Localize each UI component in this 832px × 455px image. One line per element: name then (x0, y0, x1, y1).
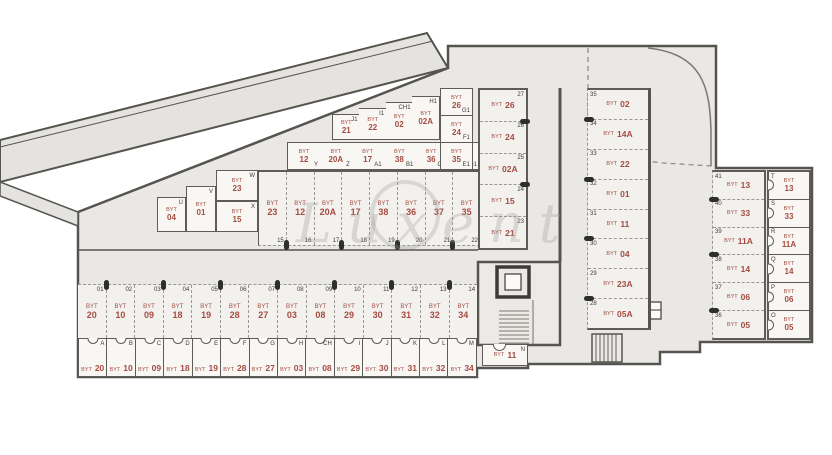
parking-space: 19 BYT38 (369, 172, 397, 245)
unit-label: BYT11A (713, 228, 764, 255)
parking-space: 13 BYT32 (420, 285, 449, 338)
unit-label: BYT15 (480, 185, 526, 216)
unit-number: 20 (87, 311, 97, 320)
cellar-room: CH BYT08 (305, 339, 333, 376)
unit-label: BYT15 (217, 202, 257, 231)
unit-number: 18 (173, 311, 183, 320)
unit-prefix: BYT (488, 166, 499, 172)
unit-label: BYT13 (713, 172, 764, 199)
unit-number: 27 (258, 311, 268, 320)
unit-prefix: BYT (86, 304, 98, 310)
unit-number: 10 (115, 311, 125, 320)
unit-number: 33 (741, 208, 750, 218)
unit-number: 22 (620, 159, 629, 169)
wing-parking-column: 41 BYT13 40 BYT33 39 BYT11A 38 BYT14 37 … (712, 170, 766, 340)
unit-number: 03 (287, 311, 297, 320)
unit-label: BYT28 (221, 339, 248, 376)
unit-number: 08 (315, 311, 325, 320)
parking-space: 05 BYT19 (191, 285, 220, 338)
cellar-room: H BYT03 (277, 339, 305, 376)
unit-prefix: BYT (229, 304, 241, 310)
unit-label: BYT24 (441, 116, 472, 142)
bottom-parking-band: 01 BYT20 02 BYT10 03 BYT09 04 BYT18 05 B… (78, 284, 477, 338)
parking-space: 31 BYT11 (588, 209, 648, 239)
parking-space: 26 BYT24 (480, 121, 526, 153)
cellar-room-n: N BYT11 (482, 344, 528, 366)
unit-number: 20A (328, 156, 343, 164)
unit-label: BYT02 (588, 90, 648, 119)
unit-label: BYT26 (480, 90, 526, 121)
floorplan-page: 01 BYT20 02 BYT10 03 BYT09 04 BYT18 05 B… (0, 0, 832, 455)
unit-number: 03 (294, 363, 303, 373)
unit-number: 05A (617, 309, 633, 319)
unit-prefix: BYT (350, 201, 362, 207)
unit-number: 02A (502, 164, 518, 174)
unit-label: BYT20 (79, 339, 106, 376)
unit-prefix: BYT (494, 352, 505, 358)
unit-number: 15 (505, 196, 514, 206)
cellar-room: G BYT27 (249, 339, 277, 376)
cellar-room: Y BYT12 (287, 142, 321, 170)
unit-number: 14 (741, 264, 750, 274)
parking-space: 17 BYT20A (314, 172, 342, 245)
unit-prefix: BYT (461, 201, 473, 207)
unit-prefix: BYT (405, 201, 417, 207)
unit-prefix: BYT (420, 111, 431, 117)
unit-number: 32 (430, 311, 440, 320)
unit-prefix: BYT (400, 304, 412, 310)
parking-space: 38 BYT14 (713, 254, 764, 282)
unit-prefix: BYT (394, 367, 405, 373)
unit-label: BYT28 (221, 285, 249, 338)
unit-label: BYT18 (164, 285, 192, 338)
unit-prefix: BYT (784, 178, 795, 184)
unit-number: 17 (351, 208, 361, 217)
elevator-car-icon (505, 274, 521, 290)
unit-label: BYT33 (769, 200, 809, 227)
unit-number: 15 (233, 216, 242, 224)
cellar-room: D BYT18 (163, 339, 191, 376)
unit-prefix: BYT (433, 201, 445, 207)
unit-label: BYT33 (713, 200, 764, 227)
unit-label: BYT04 (588, 239, 648, 268)
unit-label: BYT06 (713, 283, 764, 310)
unit-prefix: BYT (394, 149, 405, 155)
unit-prefix: BYT (727, 266, 738, 272)
cellar-room: CH1 BYT02 (386, 102, 414, 140)
parking-space: 35 BYT02 (588, 90, 648, 119)
unit-number: 27 (265, 363, 274, 373)
unit-prefix: BYT (110, 367, 121, 373)
unit-label: BYT11A (769, 228, 809, 255)
unit-number: 30 (373, 311, 383, 320)
unit-label: BYT38 (370, 172, 397, 245)
cellar-room: B BYT10 (106, 339, 134, 376)
unit-label: BYT27 (249, 285, 277, 338)
unit-prefix: BYT (322, 201, 334, 207)
unit-prefix: BYT (429, 304, 441, 310)
unit-label: BYT18 (164, 339, 191, 376)
unit-label: BYT23 (217, 171, 257, 200)
middle-parking-band: 15 BYT23 16 BYT12 17 BYT20A 18 BYT17 19 … (258, 170, 480, 246)
unit-label: BYT24 (480, 122, 526, 153)
unit-number: 23 (267, 208, 277, 217)
unit-label: BYT11 (588, 210, 648, 239)
cellar-room: Q BYT14 (769, 254, 809, 282)
cellar-room: V BYT01 (186, 186, 216, 232)
unit-prefix: BYT (138, 367, 149, 373)
unit-label: BYT02 (386, 103, 413, 139)
unit-label: BYT29 (335, 285, 363, 338)
unit-prefix: BYT (294, 201, 306, 207)
parking-space: 25 BYT02A (480, 153, 526, 185)
cellar-room: I1 BYT22 (359, 108, 387, 140)
unit-number: 22 (368, 124, 377, 132)
unit-number: 38 (395, 156, 404, 164)
cellar-room: G1 BYT26 (441, 89, 472, 115)
unit-prefix: BYT (337, 367, 348, 373)
unit-label: BYT10 (107, 339, 134, 376)
unit-number: 19 (201, 311, 211, 320)
cellar-room: P BYT06 (769, 282, 809, 310)
unit-number: 37 (434, 208, 444, 217)
unit-number: 13 (741, 180, 750, 190)
unit-label: BYT03 (278, 285, 306, 338)
unit-label: BYT23 (259, 172, 286, 245)
unit-prefix: BYT (457, 304, 469, 310)
unit-label: BYT08 (307, 285, 335, 338)
unit-label: BYT29 (335, 339, 362, 376)
parking-space: 22 BYT35 (452, 172, 480, 245)
unit-label: BYT04 (158, 198, 185, 231)
cellar-room: J BYT30 (362, 339, 390, 376)
parking-space: 30 BYT04 (588, 238, 648, 268)
unit-prefix: BYT (727, 182, 738, 188)
unit-label: BYT09 (135, 285, 163, 338)
parking-space: 01 BYT20 (78, 285, 106, 338)
unit-number: 29 (344, 311, 354, 320)
unit-number: 02 (620, 99, 629, 109)
unit-prefix: BYT (491, 102, 502, 108)
cellar-room: H1 BYT02A (412, 96, 440, 140)
unit-number: 09 (144, 311, 154, 320)
parking-space: 18 BYT17 (341, 172, 369, 245)
parking-space: 29 BYT23A (588, 268, 648, 298)
wing-cellar-column: T BYT13 S BYT33 R BYT11A Q BYT14 (767, 170, 811, 340)
unit-label: BYT08 (306, 339, 333, 376)
unit-label: BYT20A (315, 172, 342, 245)
parking-space: 33 BYT22 (588, 149, 648, 179)
unit-prefix: BYT (172, 304, 184, 310)
unit-number: 20A (320, 208, 337, 217)
unit-label: BYT02A (480, 154, 526, 185)
cellar-room: R BYT11A (769, 227, 809, 255)
unit-prefix: BYT (200, 304, 212, 310)
unit-label: BYT31 (392, 285, 420, 338)
unit-prefix: BYT (603, 311, 614, 317)
unit-label: BYT27 (250, 339, 277, 376)
unit-number: 34 (464, 363, 473, 373)
unit-number: 26 (505, 100, 514, 110)
unit-number: 24 (452, 129, 461, 137)
unit-number: 26 (452, 102, 461, 110)
unit-prefix: BYT (603, 131, 614, 137)
unit-prefix: BYT (252, 367, 263, 373)
cellar-room: E BYT19 (192, 339, 220, 376)
unit-prefix: BYT (426, 149, 437, 155)
unit-label: BYT14 (713, 255, 764, 282)
unit-label: BYT17 (352, 143, 384, 169)
unit-number: 38 (378, 208, 388, 217)
cellar-room: C BYT09 (135, 339, 163, 376)
unit-label: BYT31 (392, 339, 419, 376)
parking-space: 03 BYT09 (134, 285, 163, 338)
unit-label: BYT19 (193, 339, 220, 376)
unit-number: 23 (233, 185, 242, 193)
unit-label: BYT20A (320, 143, 352, 169)
unit-number: 36 (406, 208, 416, 217)
parking-space: 41 BYT13 (713, 172, 764, 199)
unit-label: BYT09 (136, 339, 163, 376)
unit-label: BYT23A (588, 269, 648, 298)
parking-space: 12 BYT31 (391, 285, 420, 338)
unit-number: 02A (418, 118, 433, 126)
parking-space: 08 BYT03 (277, 285, 306, 338)
parking-space: 28 BYT05A (588, 298, 648, 328)
unit-prefix: BYT (607, 221, 618, 227)
right-parking-column: 35 BYT02 34 BYT14A 33 BYT22 32 BYT01 31 … (587, 88, 651, 330)
unit-prefix: BYT (491, 198, 502, 204)
unit-prefix: BYT (724, 238, 735, 244)
unit-prefix: BYT (727, 294, 738, 300)
ramp-tail (0, 182, 78, 226)
parking-space: 10 BYT29 (334, 285, 363, 338)
unit-prefix: BYT (223, 367, 234, 373)
unit-prefix: BYT (257, 304, 269, 310)
unit-number: 31 (407, 363, 416, 373)
unit-label: BYT14A (588, 120, 648, 149)
unit-number: 04 (620, 249, 629, 259)
unit-prefix: BYT (315, 304, 327, 310)
unit-number: 23A (617, 279, 633, 289)
unit-number: 02 (395, 121, 404, 129)
parking-space: 32 BYT01 (588, 179, 648, 209)
unit-prefix: BYT (606, 191, 617, 197)
parking-space: 36 BYT05 (713, 310, 764, 338)
unit-number: 24 (505, 132, 514, 142)
cellar-room: F1 BYT24 (441, 115, 472, 142)
unit-number: 14 (785, 268, 794, 276)
unit-label: BYT35 (453, 172, 480, 245)
unit-number: 11A (782, 241, 796, 249)
parking-space: 09 BYT08 (306, 285, 335, 338)
unit-label: BYT21 (480, 217, 526, 248)
unit-label: BYT06 (769, 283, 809, 310)
unit-label: BYT34 (450, 285, 478, 338)
unit-number: 17 (363, 156, 372, 164)
unit-number: 33 (785, 213, 794, 221)
unit-label: BYT35 (441, 143, 472, 169)
unit-label: BYT12 (288, 143, 320, 169)
unit-number: 19 (209, 363, 218, 373)
cellar-room: X BYT15 (216, 201, 258, 232)
parking-space: 37 BYT06 (713, 282, 764, 310)
unit-prefix: BYT (299, 149, 310, 155)
unit-label: BYT05A (588, 299, 648, 328)
unit-prefix: BYT (81, 367, 92, 373)
unit-label: BYT12 (287, 172, 314, 245)
left-diagonal-cellars: U BYT04 V BYT01 W BYT23 X BYT15 (157, 170, 258, 232)
unit-prefix: BYT (606, 101, 617, 107)
unit-number: 01 (197, 209, 206, 217)
unit-label: BYT14 (769, 255, 809, 282)
unit-prefix: BYT (784, 234, 795, 240)
unit-label: BYT17 (342, 172, 369, 245)
unit-number: 10 (123, 363, 132, 373)
parking-space: 04 BYT18 (163, 285, 192, 338)
unit-prefix: BYT (280, 367, 291, 373)
unit-prefix: BYT (267, 201, 279, 207)
unit-prefix: BYT (422, 367, 433, 373)
unit-prefix: BYT (606, 161, 617, 167)
unit-label: BYT03 (278, 339, 305, 376)
cellar-room: O BYT05 (769, 310, 809, 338)
unit-number: 06 (785, 296, 794, 304)
unit-number: 05 (741, 320, 750, 330)
unit-number: 20 (95, 363, 104, 373)
unit-prefix: BYT (195, 367, 206, 373)
unit-number: 12 (295, 208, 305, 217)
unit-number: 14A (617, 129, 633, 139)
parking-space: 34 BYT14A (588, 119, 648, 149)
unit-prefix: BYT (491, 230, 502, 236)
central-parking-column: 27 BYT26 26 BYT24 25 BYT02A 24 BYT15 23 … (478, 88, 528, 250)
unit-prefix: BYT (115, 304, 127, 310)
unit-prefix: BYT (491, 134, 502, 140)
unit-number: 08 (322, 363, 331, 373)
unit-number: 11 (507, 350, 516, 360)
unit-number: 32 (436, 363, 445, 373)
unit-label: BYT32 (420, 339, 447, 376)
unit-number: 34 (458, 311, 468, 320)
unit-number: 29 (351, 363, 360, 373)
unit-label: BYT22 (588, 150, 648, 179)
parking-space: 15 BYT23 (259, 172, 286, 245)
cellar-room: B1 BYT38 (383, 142, 416, 170)
cellar-room: A BYT20 (79, 339, 106, 376)
parking-space: 21 BYT37 (425, 172, 453, 245)
unit-number: 35 (452, 156, 461, 164)
parking-space: 39 BYT11A (713, 227, 764, 255)
unit-prefix: BYT (343, 304, 355, 310)
cellar-room: J1 BYT21 (332, 114, 361, 140)
unit-number: 06 (741, 292, 750, 302)
unit-prefix: BYT (727, 322, 738, 328)
unit-number: 04 (167, 214, 176, 222)
unit-prefix: BYT (341, 120, 352, 126)
unit-prefix: BYT (451, 95, 462, 101)
unit-number: 11A (738, 236, 753, 246)
unit-prefix: BYT (330, 149, 341, 155)
unit-number: 21 (505, 228, 514, 238)
parking-space: 14 BYT34 (449, 285, 478, 338)
parking-space: 24 BYT15 (480, 184, 526, 216)
stacked-cellars: G1 BYT26 F1 BYT24 E1 BYT35 (440, 88, 473, 170)
parking-space: 02 BYT10 (106, 285, 135, 338)
cellar-room: I BYT29 (334, 339, 362, 376)
unit-label: BYT01 (187, 187, 215, 231)
unit-prefix: BYT (394, 114, 405, 120)
bottom-cellar-band: A BYT20 B BYT10 C BYT09 D BYT18 (78, 338, 477, 377)
stairs-right-icon (592, 334, 622, 362)
unit-number: 18 (180, 363, 189, 373)
unit-label: BYT13 (769, 172, 809, 199)
unit-prefix: BYT (451, 367, 462, 373)
cellar-room: M BYT34 (447, 339, 475, 376)
cellar-room: L BYT32 (419, 339, 447, 376)
unit-prefix: BYT (451, 149, 462, 155)
unit-label: BYT34 (448, 339, 475, 376)
unit-label: BYT37 (426, 172, 453, 245)
cellar-room: W BYT23 (216, 170, 258, 201)
unit-number: 01 (620, 189, 629, 199)
unit-number: 12 (300, 156, 309, 164)
unit-prefix: BYT (784, 206, 795, 212)
unit-prefix: BYT (727, 210, 738, 216)
unit-number: 28 (230, 311, 240, 320)
unit-label: BYT30 (364, 285, 392, 338)
unit-label: BYT20 (78, 285, 106, 338)
unit-label: BYT38 (383, 143, 415, 169)
parking-space: 27 BYT26 (480, 90, 526, 121)
unit-label: BYT02A (412, 97, 439, 139)
unit-number: 09 (152, 363, 161, 373)
cellar-room: U BYT04 (157, 197, 186, 232)
parking-space: 23 BYT21 (480, 216, 526, 248)
unit-label: BYT36 (398, 172, 425, 245)
cellar-room: S BYT33 (769, 199, 809, 227)
unit-label: BYT22 (359, 109, 386, 139)
parking-space: 06 BYT28 (220, 285, 249, 338)
unit-number: 11 (620, 219, 629, 229)
unit-label: BYT21 (333, 115, 360, 139)
unit-prefix: BYT (166, 367, 177, 373)
unit-number: 21 (342, 127, 351, 135)
unit-prefix: BYT (451, 122, 462, 128)
unit-prefix: BYT (362, 149, 373, 155)
unit-label: BYT30 (363, 339, 390, 376)
cellar-room: T BYT13 (769, 172, 809, 199)
unit-label: BYT19 (192, 285, 220, 338)
cellar-room: E1 BYT35 (441, 142, 472, 169)
parking-space: 07 BYT27 (248, 285, 277, 338)
diagonal-cellars-upper: J1 BYT21 I1 BYT22 CH1 BYT02 H1 BYT02A (332, 96, 440, 140)
unit-prefix: BYT (606, 251, 617, 257)
unit-prefix: BYT (372, 304, 384, 310)
unit-prefix: BYT (378, 201, 390, 207)
cellar-room: F BYT28 (220, 339, 248, 376)
parking-space: 16 BYT12 (286, 172, 314, 245)
unit-number: 30 (379, 363, 388, 373)
unit-label: BYT05 (769, 311, 809, 338)
unit-prefix: BYT (603, 281, 614, 287)
cellar-room: K BYT31 (391, 339, 419, 376)
cellar-room: Z BYT20A (320, 142, 353, 170)
parking-space: 40 BYT33 (713, 199, 764, 227)
unit-number: 05 (785, 324, 794, 332)
cellar-room: A1 BYT17 (352, 142, 385, 170)
unit-prefix: BYT (367, 117, 378, 123)
